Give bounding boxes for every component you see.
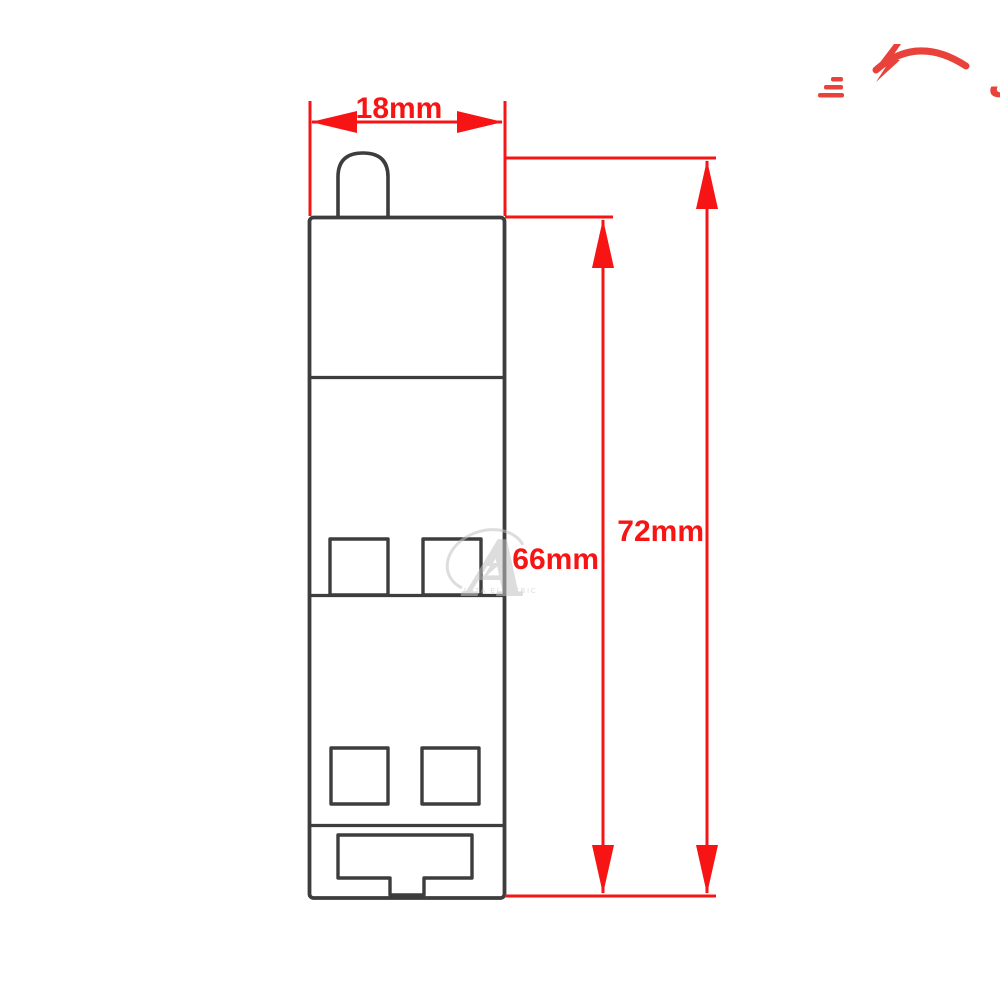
dim-body-height-label: 66mm bbox=[512, 543, 599, 576]
dim-total-arrow-down bbox=[696, 845, 718, 894]
toggle-lever bbox=[338, 153, 388, 218]
logo-lightning-icon bbox=[876, 44, 901, 82]
logo-text: آرتاالکتریک bbox=[988, 61, 1000, 105]
lower-terminal-square-left bbox=[331, 748, 388, 804]
dim-body-arrow-down bbox=[592, 845, 614, 894]
dim-width-label: 18mm bbox=[356, 92, 443, 125]
logo-speed-lines-icon bbox=[818, 77, 844, 98]
upper-terminal-square-left bbox=[330, 539, 388, 595]
dim-total-arrow-up bbox=[696, 160, 718, 209]
dim-body-arrow-up bbox=[592, 219, 614, 268]
dim-total-height-label: 72mm bbox=[617, 515, 704, 548]
lower-terminal-square-right bbox=[422, 748, 479, 804]
brand-logo: آرتاالکتریک bbox=[818, 44, 1000, 105]
diagram-canvas: آرتاالکتریک A ARTA ELECTRIC bbox=[0, 0, 1000, 1000]
dim-width-arrow-left bbox=[311, 111, 357, 133]
watermark-subtext: ARTA ELECTRIC bbox=[463, 587, 537, 595]
dim-width-arrow-right bbox=[457, 111, 503, 133]
